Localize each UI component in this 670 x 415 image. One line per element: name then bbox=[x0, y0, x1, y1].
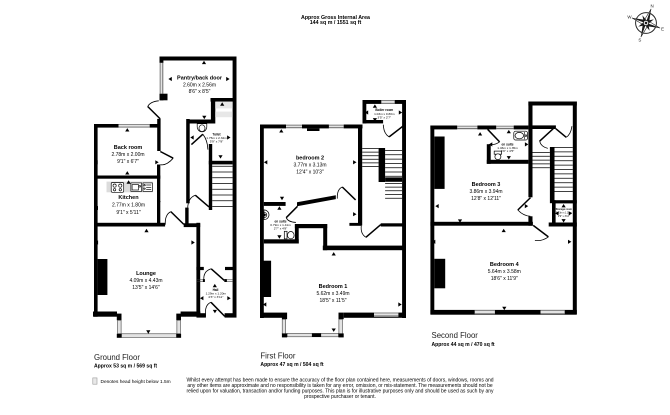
svg-text:Bedroom 1: Bedroom 1 bbox=[319, 284, 348, 290]
svg-text:13'5" x 14'6": 13'5" x 14'6" bbox=[132, 285, 160, 291]
svg-text:prospective purchaser or tenan: prospective purchaser or tenant. bbox=[304, 394, 376, 400]
svg-text:2'9" x 3'11": 2'9" x 3'11" bbox=[558, 215, 570, 218]
svg-text:18'5" x 11'5": 18'5" x 11'5" bbox=[319, 298, 346, 304]
svg-text:2.77m x 1.80m: 2.77m x 1.80m bbox=[112, 203, 145, 209]
svg-text:8'6" x 8'5": 8'6" x 8'5" bbox=[189, 89, 211, 95]
svg-text:2.78m x 2.00m: 2.78m x 2.00m bbox=[111, 152, 144, 158]
svg-text:144 sq m / 1551 sq ft: 144 sq m / 1551 sq ft bbox=[310, 20, 362, 26]
svg-text:5.62m x 3.49m: 5.62m x 3.49m bbox=[316, 291, 349, 297]
svg-text:Approx 44 sq m / 470 sq ft: Approx 44 sq m / 470 sq ft bbox=[432, 342, 495, 348]
svg-text:bedroom 2: bedroom 2 bbox=[296, 156, 324, 162]
svg-text:4'9" x 4'5": 4'9" x 4'5" bbox=[501, 149, 515, 153]
svg-text:18'6" x 11'9": 18'6" x 11'9" bbox=[491, 276, 518, 282]
svg-text:Lounge: Lounge bbox=[136, 271, 156, 277]
svg-text:First Floor: First Floor bbox=[260, 352, 295, 361]
svg-text:2'7" x 4'8": 2'7" x 4'8" bbox=[274, 227, 288, 231]
svg-text:12'4" x 10'3": 12'4" x 10'3" bbox=[296, 170, 324, 176]
svg-text:Ground Floor: Ground Floor bbox=[94, 353, 140, 362]
svg-text:9'1" x 5'11": 9'1" x 5'11" bbox=[116, 210, 140, 216]
svg-text:2.60m x 2.56m: 2.60m x 2.56m bbox=[183, 83, 216, 89]
svg-text:Second Floor: Second Floor bbox=[432, 331, 479, 340]
svg-text:3.77m x 3.13m: 3.77m x 3.13m bbox=[293, 163, 326, 169]
svg-text:Denotes head height below 1.5m: Denotes head height below 1.5m bbox=[101, 379, 171, 385]
svg-text:N: N bbox=[651, 4, 654, 9]
svg-text:9'1" x 6'7": 9'1" x 6'7" bbox=[117, 159, 139, 165]
svg-text:4.09m x 4.43m: 4.09m x 4.43m bbox=[129, 278, 162, 284]
svg-text:Back room: Back room bbox=[114, 145, 143, 151]
svg-text:Bedroom 4: Bedroom 4 bbox=[490, 262, 520, 268]
svg-text:S: S bbox=[638, 37, 641, 42]
svg-text:Approx 53 sq m / 569 sq ft: Approx 53 sq m / 569 sq ft bbox=[94, 363, 157, 369]
svg-text:Kitchen: Kitchen bbox=[118, 195, 139, 201]
svg-text:12'8" x 12'11": 12'8" x 12'11" bbox=[471, 196, 501, 202]
svg-text:5.64m x 3.58m: 5.64m x 3.58m bbox=[488, 269, 521, 275]
svg-text:5'9" x 7'8": 5'9" x 7'8" bbox=[210, 139, 224, 143]
svg-text:3.86m x 3.94m: 3.86m x 3.94m bbox=[469, 189, 502, 195]
svg-text:Pantry/back door: Pantry/back door bbox=[177, 76, 223, 82]
svg-text:4'3" x 3'11": 4'3" x 3'11" bbox=[208, 295, 223, 299]
svg-text:3'5" x 2'7": 3'5" x 2'7" bbox=[378, 115, 392, 119]
svg-text:Storage room: Storage room bbox=[556, 208, 573, 211]
svg-text:E: E bbox=[661, 27, 664, 32]
svg-text:Approx 47 sq m / 504 sq ft: Approx 47 sq m / 504 sq ft bbox=[260, 362, 323, 368]
svg-text:Bedroom 3: Bedroom 3 bbox=[472, 182, 501, 188]
